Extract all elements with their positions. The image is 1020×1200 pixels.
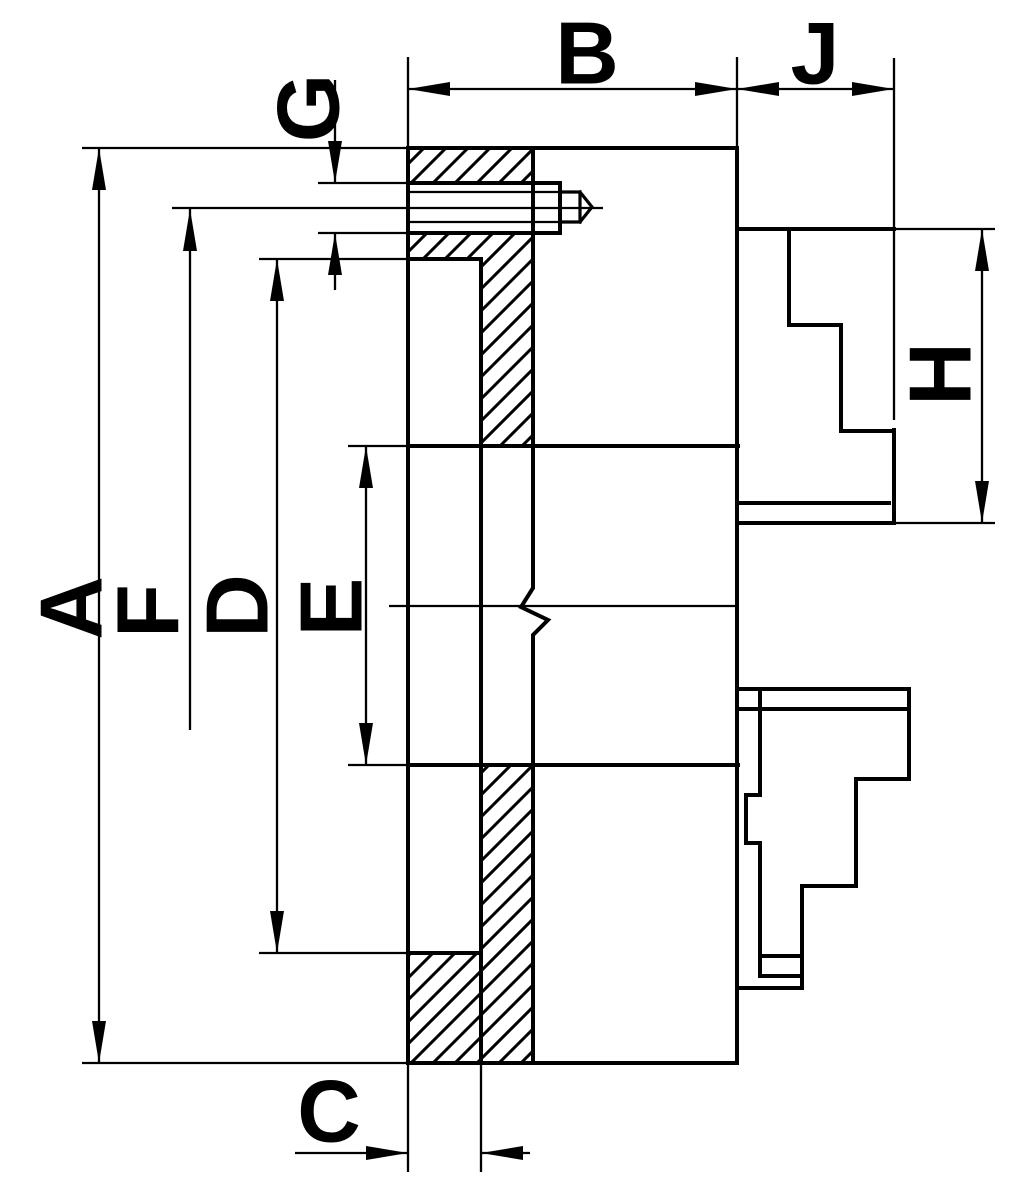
chuck-section-drawing: A F D E G H B J C	[0, 0, 1020, 1200]
arrowhead-h-top	[975, 229, 989, 271]
dim-label-b: B	[555, 4, 619, 103]
dim-label-f: F	[99, 584, 198, 638]
arrowhead-g-bottom	[328, 233, 342, 275]
hatch-top-flange-lower-strip	[408, 233, 533, 259]
dim-label-d: D	[188, 574, 287, 638]
dim-label-h: H	[891, 342, 990, 406]
arrowhead-a-top	[92, 148, 106, 190]
arrowhead-h-bottom	[975, 481, 989, 523]
technical-drawing-canvas: A F D E G H B J C	[0, 0, 1020, 1200]
hatch-top-flange-upper-strip	[408, 148, 531, 183]
arrowhead-j-left	[737, 82, 779, 96]
dim-label-c: C	[297, 1062, 361, 1161]
dim-label-e: E	[282, 578, 381, 637]
lower-jaw-outline	[738, 689, 909, 988]
upper-jaw-outline	[738, 229, 894, 523]
arrowhead-d-bottom	[270, 911, 284, 953]
arrowhead-d-top	[270, 259, 284, 301]
arrowhead-b-left	[408, 82, 450, 96]
arrowhead-c-left	[366, 1146, 408, 1160]
hatch-bottom-flange	[408, 953, 481, 1063]
dim-label-g: G	[259, 74, 358, 142]
arrowhead-b-right	[695, 82, 737, 96]
arrowhead-a-bottom	[92, 1021, 106, 1063]
arrowhead-e-top	[359, 446, 373, 488]
arrowhead-f-top	[183, 209, 197, 251]
arrowhead-e-bottom	[359, 723, 373, 765]
hatch-body-wall-lower	[481, 765, 533, 1063]
arrowhead-c-right	[481, 1146, 523, 1160]
arrowhead-g-top	[328, 141, 342, 183]
arrowhead-j-right	[852, 82, 894, 96]
hatch-body-wall-upper	[481, 259, 533, 446]
dim-label-j: J	[791, 4, 840, 103]
